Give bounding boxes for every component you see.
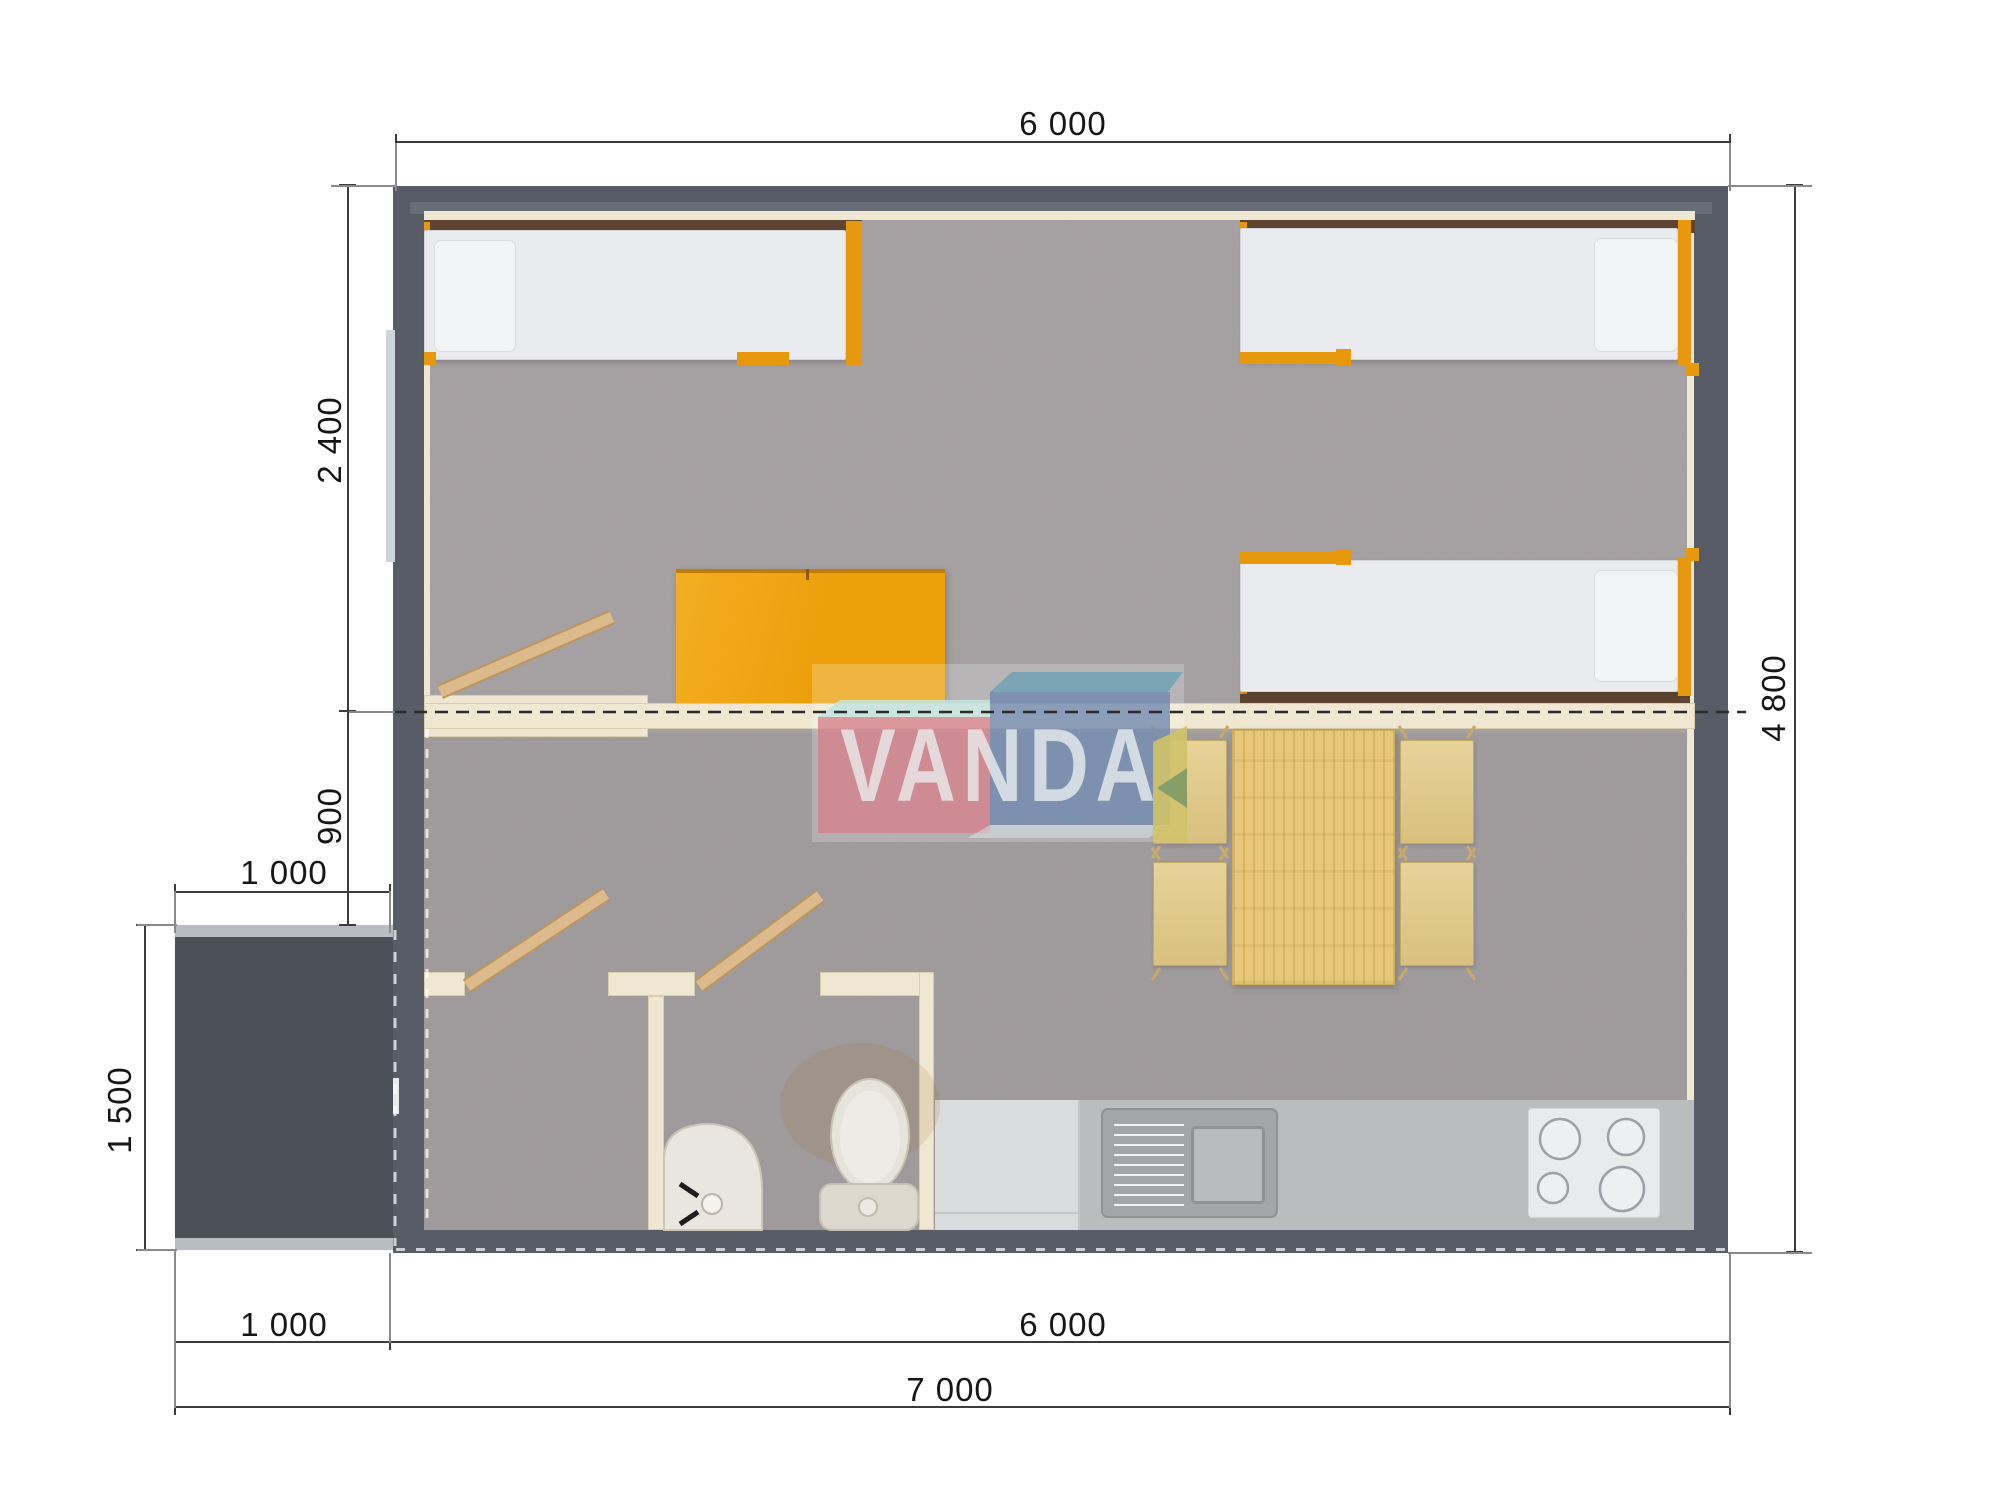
dim-porch-width: 1 000 — [240, 854, 328, 892]
vanda-logo: VANDA — [812, 664, 1187, 842]
detail-layer: VANDA — [0, 0, 2000, 1502]
logo-blue-bottom-face — [968, 825, 1170, 838]
dim-line-porch-depth — [144, 925, 146, 1251]
wc-door-leaf — [699, 896, 820, 986]
dim-porch-depth: 1 500 — [101, 1066, 139, 1154]
chair-legs — [1152, 726, 1475, 980]
dim-top-width: 6 000 — [1019, 105, 1107, 143]
dim-bedroom-depth: 2 400 — [311, 396, 349, 484]
dim-hallway-depth: 900 — [311, 787, 349, 845]
wash-basin-icon — [664, 1124, 762, 1230]
dim-house-height: 4 800 — [1755, 654, 1793, 742]
burner-icons — [1538, 1119, 1644, 1211]
bedroom-door-leaf — [440, 617, 612, 692]
dim-total-width: 7 000 — [906, 1371, 994, 1409]
shower-door-leaf — [467, 894, 606, 986]
logo-teal-top — [990, 672, 1183, 692]
logo-text: VANDA — [840, 707, 1162, 823]
dim-bottom-porch-width: 1 000 — [240, 1306, 328, 1344]
dim-line-bottom-1 — [175, 1341, 1731, 1343]
dim-bottom-house-width: 6 000 — [1019, 1306, 1107, 1344]
floor-plan: VANDA — [0, 0, 2000, 1502]
dim-line-right — [1794, 185, 1796, 1254]
